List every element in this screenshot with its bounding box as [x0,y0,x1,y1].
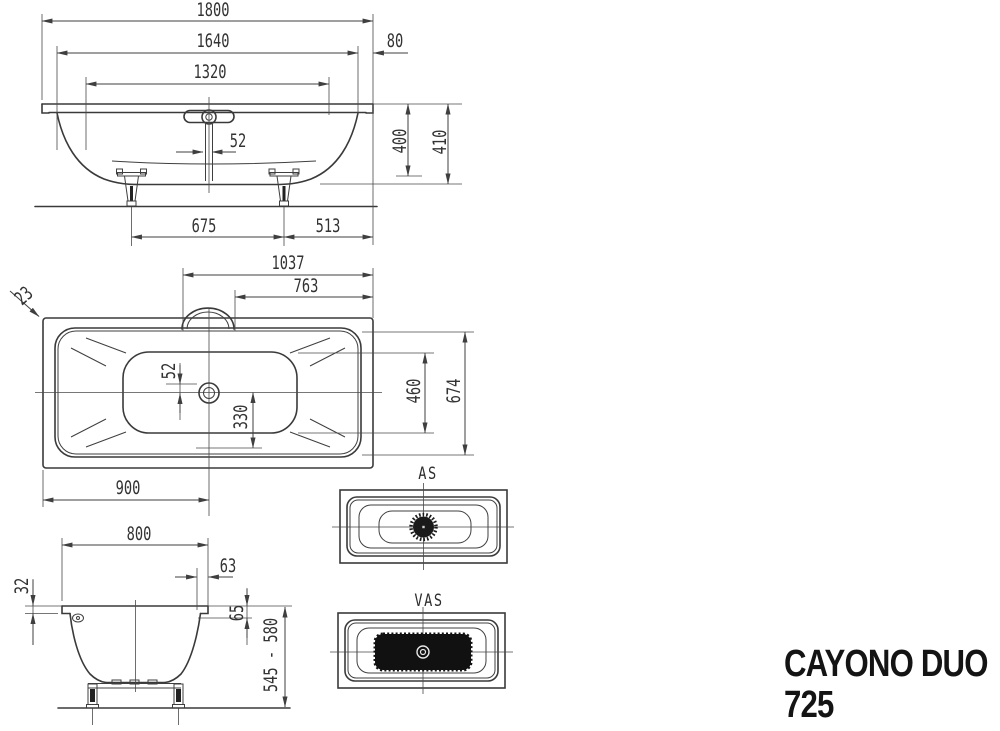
dim-drain-cross-offset: 52 [158,363,180,379]
dim-feet-spacing: 675 [192,215,217,237]
product-model: 725 [784,685,988,726]
dim-base-width: 460 [403,379,425,404]
as-view-drawing [332,483,514,570]
dim-center-to-end: 900 [116,477,141,499]
dim-height-range: 545 - 580 [260,618,282,692]
product-title: CAYONO DUO 725 [784,644,988,726]
end-dimension-lines [25,538,292,707]
dim-overflow-to-end: 763 [294,275,319,297]
dim-total-depth: 410 [429,130,451,155]
dim-inner-depth: 400 [389,129,411,154]
end-elevation-drawing [25,538,292,725]
vas-view-drawing [330,607,513,694]
vas-waste-cover [375,634,471,670]
dim-inner-length: 1640 [197,30,230,52]
vas-view-label: VAS [414,591,443,611]
as-view-label: AS [418,464,438,484]
dim-overall-width: 800 [127,523,152,545]
left-foot [117,169,147,206]
overflow-hole [73,614,84,622]
right-foot [269,169,299,206]
dim-rim-drop: 32 [11,578,33,594]
dim-inner-edge-drop: 65 [226,605,248,621]
dim-drain-lateral: 330 [230,405,252,430]
dim-drain-offset-side: 52 [230,130,246,152]
dim-inner-width: 674 [443,379,465,404]
dim-feet-to-end: 513 [316,215,341,237]
dim-drain-to-end: 1037 [272,252,305,274]
dim-edge-offset: 63 [220,555,236,577]
dim-total-length: 1800 [197,0,230,21]
dim-bottom-length: 1320 [194,61,227,83]
dim-end-rim: 80 [387,30,403,52]
technical-drawing [0,0,1000,731]
product-name: CAYONO DUO [784,644,988,685]
